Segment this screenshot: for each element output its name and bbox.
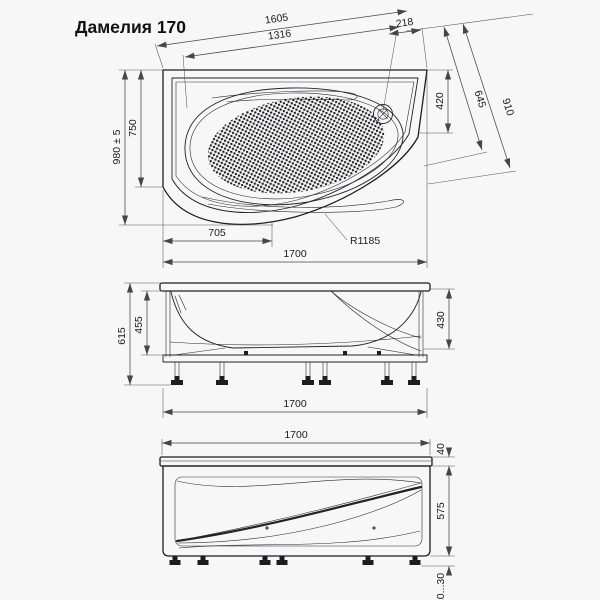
sparkle-1 <box>265 526 269 530</box>
dim-705: 705 <box>163 227 272 241</box>
dim-910-label: 910 <box>500 97 517 117</box>
dim-910: 910 <box>463 24 516 168</box>
dim-575: 575 <box>435 466 449 556</box>
technical-drawing: Дамелия 170 1 <box>0 0 600 600</box>
dim-10-30: 10...30 <box>435 547 449 600</box>
front-view: 1700 40 575 10...30 <box>160 429 455 600</box>
dim-40-label: 40 <box>435 443 447 455</box>
front-panel-decor-curves <box>177 479 421 548</box>
dim-1700-front-label: 1700 <box>284 429 308 441</box>
side-frame-rail <box>163 355 427 362</box>
dim-1316-label: 1316 <box>267 27 292 42</box>
dim-1700-side-label: 1700 <box>283 398 307 410</box>
dim-218: 218 <box>389 16 421 34</box>
drawing-sheet: Дамелия 170 1 <box>0 0 600 600</box>
front-ext-lines <box>162 439 455 566</box>
dim-575-label: 575 <box>435 502 447 520</box>
side-legs <box>171 362 420 385</box>
dim-705-label: 705 <box>208 227 226 239</box>
dim-455-label: 455 <box>133 316 145 334</box>
dim-218-label: 218 <box>395 16 414 30</box>
page-title: Дамелия 170 <box>75 17 186 37</box>
dim-430: 430 <box>435 289 449 349</box>
side-sweep-1 <box>331 291 421 351</box>
plan-tub-outline <box>163 70 427 224</box>
front-panel-body <box>160 457 432 565</box>
radius-callout: R1185 <box>325 214 380 247</box>
side-tub-body <box>160 283 430 385</box>
plan-view: 1605 1316 218 420 645 910 <box>111 11 533 268</box>
dim-1700-side: 1700 <box>163 398 427 412</box>
dim-40: 40 <box>435 443 449 475</box>
dim-1700-front: 1700 <box>162 429 430 443</box>
dim-420-label: 420 <box>434 92 446 110</box>
dim-980-label: 980 ± 5 <box>111 129 123 164</box>
side-sweep-2 <box>331 291 421 338</box>
side-feet <box>171 376 420 385</box>
dim-615-label: 615 <box>116 327 128 345</box>
dim-1605-label: 1605 <box>264 11 289 26</box>
side-view: 615 455 430 1700 <box>116 283 455 418</box>
radius-label: R1185 <box>350 235 380 247</box>
dim-1700-plan: 1700 <box>163 248 427 262</box>
front-rim <box>160 457 432 466</box>
ext-lines-right <box>418 70 516 184</box>
dim-455: 455 <box>133 291 147 355</box>
side-rim <box>160 283 430 291</box>
dim-1316: 1316 <box>185 27 399 57</box>
sparkle-2 <box>372 526 376 530</box>
front-feet <box>170 556 421 565</box>
side-head-details <box>175 295 186 313</box>
dim-645-label: 645 <box>472 89 489 109</box>
dim-750: 750 <box>127 70 141 187</box>
dim-430-label: 430 <box>435 311 447 329</box>
dim-980: 980 ± 5 <box>111 70 125 225</box>
dim-615: 615 <box>116 283 130 385</box>
side-dimensions: 615 455 430 1700 <box>116 283 455 418</box>
dim-10-30-label: 10...30 <box>435 573 447 600</box>
dim-1700-plan-label: 1700 <box>283 248 307 260</box>
dim-645: 645 <box>444 27 488 150</box>
dim-750-label: 750 <box>127 119 139 137</box>
dim-420: 420 <box>434 70 448 133</box>
drain <box>374 105 393 124</box>
